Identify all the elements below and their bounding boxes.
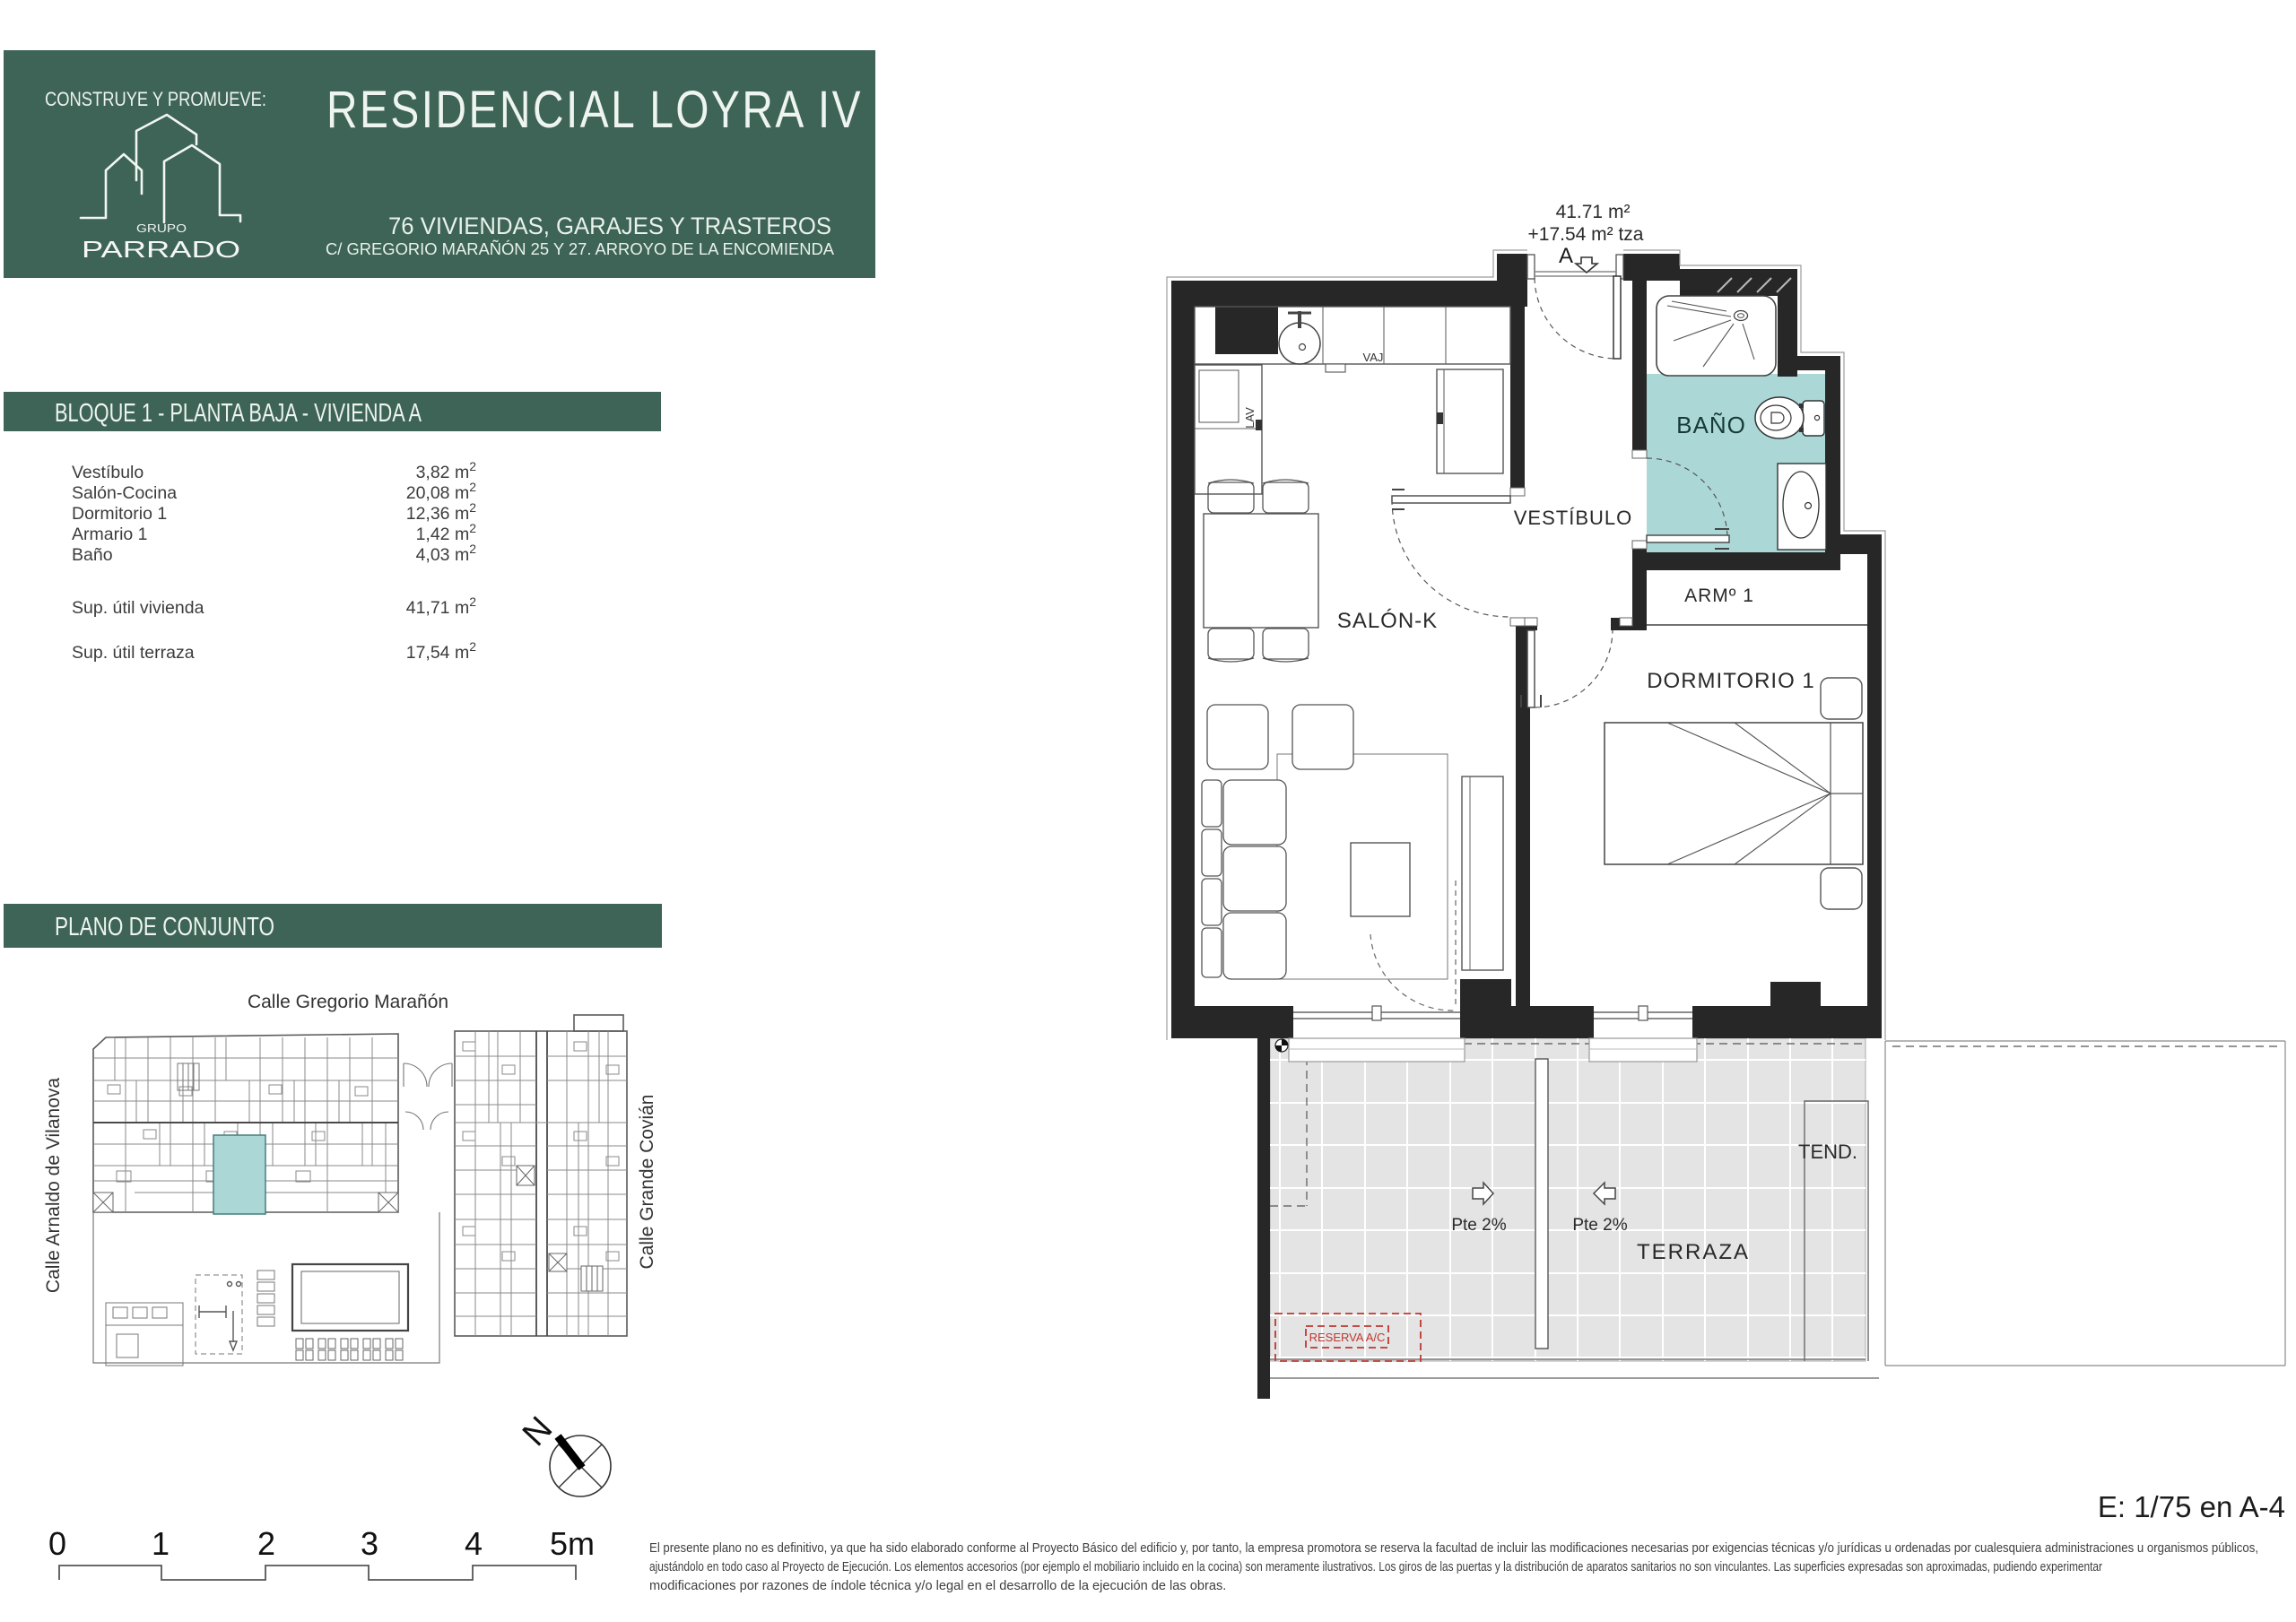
svg-text:3: 3 [361,1525,378,1562]
svg-text:ajustándolo en todo caso al Pr: ajustándolo en todo caso al Proyecto de … [649,1560,2102,1574]
svg-text:VAJ: VAJ [1363,351,1384,364]
svg-text:BAÑO: BAÑO [1676,412,1746,438]
svg-text:20,08 m2: 20,08 m2 [406,480,476,503]
svg-text:Calle Arnaldo de Vilanova: Calle Arnaldo de Vilanova [43,1078,64,1293]
svg-text:3,82 m2: 3,82 m2 [416,459,477,482]
svg-text:Calle Grande Covián: Calle Grande Covián [637,1095,657,1270]
svg-text:A: A [1559,244,1573,268]
svg-text:RESIDENCIAL LOYRA IV: RESIDENCIAL LOYRA IV [326,81,863,139]
svg-text:+17.54 m² tza: +17.54 m² tza [1528,224,1644,245]
svg-text:Pte 2%: Pte 2% [1451,1216,1506,1235]
svg-text:PLANO DE CONJUNTO: PLANO DE CONJUNTO [55,913,274,941]
svg-text:Sup. útil vivienda: Sup. útil vivienda [72,598,204,618]
svg-text:GRUPO: GRUPO [136,221,187,235]
svg-text:4,03 m2: 4,03 m2 [416,542,477,565]
svg-text:Pte 2%: Pte 2% [1572,1216,1627,1235]
svg-text:41,71 m2: 41,71 m2 [406,594,476,618]
svg-text:2: 2 [257,1525,275,1562]
svg-text:5m: 5m [550,1525,595,1562]
svg-text:4: 4 [465,1525,483,1562]
svg-text:41.71 m²: 41.71 m² [1556,202,1631,222]
svg-text:VESTÍBULO: VESTÍBULO [1514,507,1632,529]
svg-text:Salón-Cocina: Salón-Cocina [72,483,177,503]
svg-text:Calle Gregorio Marañón: Calle Gregorio Marañón [248,992,448,1012]
svg-text:Armario 1: Armario 1 [72,525,148,544]
svg-text:TEND.: TEND. [1798,1141,1857,1163]
svg-text:12,36 m2: 12,36 m2 [406,500,476,524]
svg-text:76 VIVIENDAS, GARAJES Y TRASTE: 76 VIVIENDAS, GARAJES Y TRASTEROS [388,213,831,239]
svg-text:CONSTRUYE Y PROMUEVE:: CONSTRUYE Y PROMUEVE: [45,88,266,110]
svg-text:PARRADO: PARRADO [82,236,240,263]
svg-text:Vestíbulo: Vestíbulo [72,463,143,482]
svg-text:Sup. útil terraza: Sup. útil terraza [72,643,195,663]
svg-text:modificaciones por razones de: modificaciones por razones de índole téc… [649,1579,1226,1593]
svg-text:LAV: LAV [1243,407,1257,429]
svg-text:ARMº 1: ARMº 1 [1684,585,1754,606]
svg-text:0: 0 [48,1525,66,1562]
svg-text:BLOQUE 1 - PLANTA BAJA - VIVIE: BLOQUE 1 - PLANTA BAJA - VIVIENDA A [55,399,422,428]
svg-text:TERRAZA: TERRAZA [1637,1240,1750,1264]
svg-text:El presente plano no es defini: El presente plano no es definitivo, ya q… [649,1541,2258,1556]
svg-text:17,54 m2: 17,54 m2 [406,639,476,663]
svg-text:1,42 m2: 1,42 m2 [416,521,477,544]
svg-text:RESERVA A/C: RESERVA A/C [1309,1331,1386,1344]
svg-text:E: 1/75 en A-4: E: 1/75 en A-4 [2098,1490,2285,1523]
svg-text:Dormitorio 1: Dormitorio 1 [72,504,167,524]
svg-text:1: 1 [152,1525,170,1562]
svg-text:Baño: Baño [72,545,113,565]
svg-text:SALÓN-K: SALÓN-K [1337,609,1438,633]
svg-text:C/ GREGORIO MARAÑÓN 25 Y 27. A: C/ GREGORIO MARAÑÓN 25 Y 27. ARROYO DE L… [326,239,835,258]
svg-text:DORMITORIO 1: DORMITORIO 1 [1647,669,1815,693]
